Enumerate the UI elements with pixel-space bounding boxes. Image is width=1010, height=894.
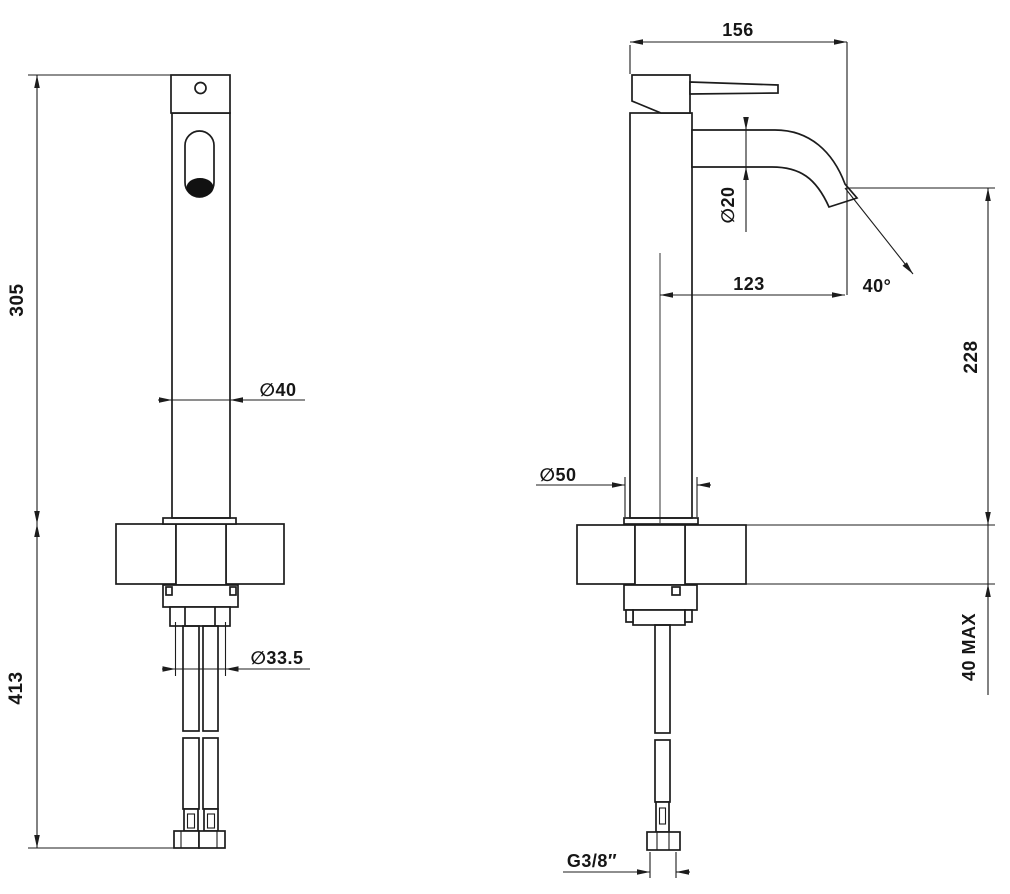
arrow-up-deck <box>34 524 40 537</box>
front-spout-outlet <box>187 178 214 197</box>
front-handle-pin <box>195 83 206 94</box>
arrow-angle-40 <box>903 262 914 274</box>
side-mounting-bracket <box>624 585 697 610</box>
side-deck-left-section <box>577 525 635 584</box>
dim-label-d335: ∅33.5 <box>251 648 304 668</box>
arrow-up-top <box>34 75 40 88</box>
front-body-diameter-dimension: ∅40 <box>158 380 305 403</box>
dim-label-d50: ∅50 <box>540 465 577 485</box>
side-handle-cap <box>632 75 690 113</box>
spout-reach-and-angle-dimension: 123 40° <box>660 188 913 298</box>
arrow-left-156 <box>630 39 643 45</box>
dim-label-123: 123 <box>733 274 765 294</box>
side-bracket-tab <box>672 587 680 595</box>
side-view: 156 ∅20 123 40° 228 40 MAX <box>536 20 995 878</box>
front-base-flange <box>163 518 236 524</box>
side-hose-upper <box>655 625 670 733</box>
dim-label-305: 305 <box>7 283 28 316</box>
arrow-left-d40 <box>230 397 243 403</box>
arrow-right-d40 <box>159 397 172 403</box>
arrow-right-d335 <box>163 666 176 672</box>
side-nut-tab-right <box>685 610 692 622</box>
arrow-down-bottom <box>34 835 40 848</box>
arrow-down-d20 <box>743 117 749 130</box>
front-hose-nut-left <box>174 831 199 848</box>
front-bracket-tab-left <box>166 587 172 595</box>
arrow-left-d50 <box>697 482 710 488</box>
front-hose-right-lower <box>203 738 218 809</box>
side-handle-lever <box>690 82 778 94</box>
dim-label-g38: G3/8″ <box>567 851 617 871</box>
front-height-dimensions: 305 413 <box>6 75 178 848</box>
side-hose-fitting <box>656 802 669 832</box>
front-deck-right-section <box>226 524 284 584</box>
side-shank <box>635 525 685 585</box>
side-mounting-nut <box>633 610 685 625</box>
angle-reference-line <box>845 188 913 274</box>
thread-dimension: G3/8″ <box>563 851 690 878</box>
arrow-up-228 <box>985 188 991 201</box>
side-nut-tab-left <box>626 610 633 622</box>
front-hose-left-lower <box>183 738 199 809</box>
arrow-right-d50 <box>612 482 625 488</box>
side-body-knurled <box>630 113 692 518</box>
front-hose-nut-right <box>199 831 225 848</box>
side-deck-right-section <box>685 525 746 584</box>
dim-label-40deg: 40° <box>863 276 892 296</box>
front-shank <box>176 524 226 585</box>
arrow-right-g38 <box>637 869 650 875</box>
arrow-left-d335 <box>226 666 239 672</box>
dim-label-413: 413 <box>6 671 27 704</box>
front-hose-right-upper <box>203 626 218 731</box>
front-view: 305 413 ∅40 ∅33.5 <box>6 75 310 848</box>
arrow-up-40max <box>985 584 991 597</box>
arrow-up-d20 <box>743 167 749 180</box>
dim-label-156: 156 <box>722 20 754 40</box>
side-hose-lower <box>655 740 670 802</box>
side-supply-hose <box>647 625 680 850</box>
arrow-down-deck <box>34 511 40 524</box>
dim-label-d40: ∅40 <box>260 380 297 400</box>
side-base-flange <box>624 518 698 524</box>
base-diameter-dimension: ∅50 <box>536 465 711 517</box>
dim-label-40max: 40 MAX <box>959 613 979 681</box>
arrow-left-g38 <box>676 869 689 875</box>
arrow-right-156 <box>834 39 847 45</box>
arrow-down-228 <box>985 512 991 525</box>
front-deck-left-section <box>116 524 176 584</box>
dim-label-228: 228 <box>961 340 982 373</box>
front-bracket-tab-right <box>230 587 236 595</box>
arrow-left-123 <box>660 292 673 298</box>
spout-height-and-deck-thickness-dimension: 228 40 MAX <box>846 188 995 695</box>
faucet-dimension-drawing: 305 413 ∅40 ∅33.5 <box>0 0 1010 894</box>
front-supply-hoses <box>174 626 225 848</box>
dim-label-d20: ∅20 <box>718 187 738 224</box>
side-hose-nut <box>647 832 680 850</box>
front-hole-diameter-dimension: ∅33.5 <box>162 622 310 676</box>
front-mounting-bracket <box>163 585 238 607</box>
arrow-right-123 <box>832 292 845 298</box>
side-spout <box>692 130 857 207</box>
front-mounting-nut <box>170 607 230 626</box>
technical-drawing-sheet: 305 413 ∅40 ∅33.5 <box>0 0 1010 894</box>
front-hose-left-upper <box>183 626 199 731</box>
